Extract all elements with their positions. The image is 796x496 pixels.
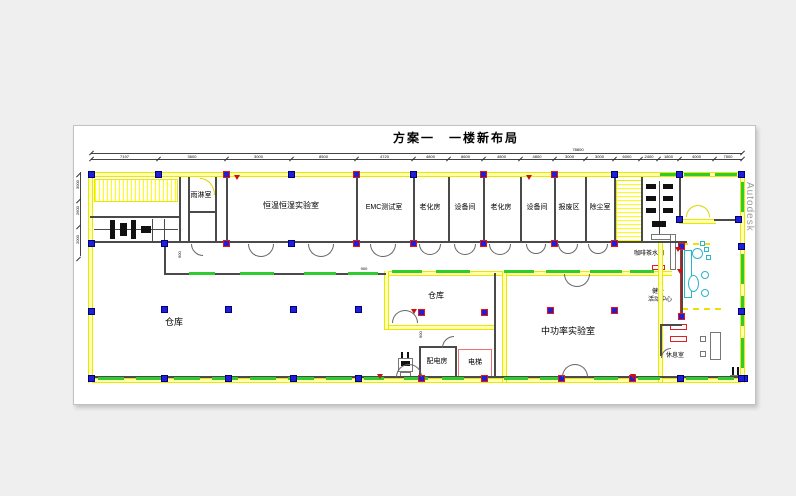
page-title: 方案一 一楼新布局 (393, 132, 519, 145)
lounge-chair (700, 336, 706, 342)
coffee-counter-side (670, 234, 676, 270)
dimension-segment-value: 3000 (75, 180, 80, 189)
dimension-segment-value: 7197 (120, 154, 129, 159)
column-marker (677, 375, 684, 382)
red-triangle-marker (377, 374, 383, 379)
door-leaf (526, 244, 536, 254)
wall-dark (554, 177, 556, 241)
column-marker (288, 171, 295, 178)
green-highlight (638, 377, 660, 380)
door-leaf (562, 364, 575, 377)
green-highlight (741, 182, 744, 212)
door-leaf (191, 244, 203, 256)
room-label-aging-2: 老化房 (491, 204, 512, 212)
green-highlight (594, 377, 618, 380)
green-highlight (304, 272, 336, 275)
column-marker (223, 240, 230, 247)
dimension-micro-1: 900 (177, 251, 182, 258)
column-marker (410, 240, 417, 247)
door-leaf (558, 244, 568, 254)
dimension-segment-value: 7500 (724, 154, 733, 159)
top-dimension-line-segments (91, 159, 742, 160)
round-chair (701, 271, 709, 279)
autodesk-watermark: Autodesk (744, 182, 755, 232)
oval-table (688, 275, 699, 292)
dimension-segment-value: 4800 (426, 154, 435, 159)
column-marker (88, 240, 95, 247)
room-label-medium-power-lab: 中功率实验室 (541, 327, 595, 337)
column-marker (551, 240, 558, 247)
column-marker (481, 375, 488, 382)
column-marker (551, 171, 558, 178)
door-leaf (419, 244, 430, 255)
column-marker (738, 375, 745, 382)
green-highlight (98, 377, 124, 380)
yellow-dashed-opening-bottom (682, 308, 722, 310)
room-label-elevator: 电梯 (468, 359, 482, 367)
dimension-segment-value: 6000 (623, 154, 632, 159)
dimension-tick (740, 157, 745, 162)
dimension-tick (76, 257, 81, 262)
column-marker (223, 171, 230, 178)
wall-dark (614, 177, 616, 241)
washroom-fixtures-left (94, 218, 178, 242)
room-label-temp-humidity-lab: 恒温恒湿实验室 (263, 202, 319, 211)
column-marker (225, 375, 232, 382)
column-marker (353, 240, 360, 247)
dimension-segment-value: 8600 (461, 154, 470, 159)
equipment-tag-red (670, 336, 687, 342)
column-marker (161, 306, 168, 313)
green-highlight (136, 377, 162, 380)
column-marker (547, 307, 554, 314)
wall-dark (90, 216, 179, 218)
column-marker (480, 240, 487, 247)
door-leaf (321, 244, 334, 257)
column-marker (353, 171, 360, 178)
wall-dark (188, 177, 190, 241)
green-highlight (741, 338, 744, 368)
chair (704, 247, 709, 252)
column-marker (290, 375, 297, 382)
column-marker (676, 216, 683, 223)
red-triangle-marker (677, 269, 683, 274)
green-highlight (715, 173, 737, 176)
room-label-emc-test: EMC测试室 (366, 204, 403, 212)
room-label-equipment-1: 设备间 (455, 204, 476, 212)
wall-dark (226, 177, 228, 241)
wall-dark (483, 177, 485, 241)
door-leaf (686, 205, 698, 217)
column-marker (410, 171, 417, 178)
wall-dark (164, 243, 166, 273)
green-highlight (546, 270, 580, 273)
door-leaf (564, 274, 577, 287)
dimension-segment-value: 4720 (380, 154, 389, 159)
wall-dark (90, 241, 687, 243)
column-marker (735, 216, 742, 223)
chair (706, 255, 711, 260)
column-marker (738, 243, 745, 250)
door-leaf (588, 244, 598, 254)
wall-dark (494, 273, 496, 378)
wall-yellow (384, 325, 496, 330)
door-leaf (370, 244, 383, 257)
drawing-canvas: 方案一 一楼新布局 Autodesk 78800 900 900 900 (73, 125, 756, 405)
column-marker (161, 375, 168, 382)
wall-dark (660, 324, 662, 356)
dimension-segment-value: 2000 (75, 235, 80, 244)
green-highlight (326, 377, 352, 380)
dimension-segment-value: 1800 (664, 154, 673, 159)
wall-dark (215, 177, 217, 241)
door-leaf (500, 244, 511, 255)
wall-yellow (502, 271, 507, 382)
column-marker (480, 171, 487, 178)
dimension-segment-value: 4800 (533, 154, 542, 159)
wall-dark (356, 177, 358, 241)
dimension-micro-3: 900 (418, 331, 423, 338)
round-table (692, 248, 703, 259)
column-marker (88, 375, 95, 382)
green-highlight (684, 173, 710, 176)
green-highlight (718, 377, 734, 380)
wall-dark (188, 211, 215, 213)
column-marker (288, 240, 295, 247)
door-leaf (308, 244, 321, 257)
wall-dark (448, 177, 450, 241)
room-label-warehouse-small: 仓库 (428, 292, 444, 301)
door-leaf (430, 244, 441, 255)
dimension-segment-value: 3000 (254, 154, 263, 159)
dimension-segment-value: 3000 (565, 154, 574, 159)
green-highlight (590, 270, 622, 273)
dimension-segment-value: 2600 (75, 206, 80, 215)
green-highlight (686, 377, 708, 380)
column-marker (738, 171, 745, 178)
column-marker (355, 375, 362, 382)
room-label-equipment-2: 设备间 (527, 204, 548, 212)
column-marker (678, 313, 685, 320)
dimension-segment-value: 3000 (595, 154, 604, 159)
door-leaf (536, 244, 546, 254)
column-marker (355, 306, 362, 313)
wall-dark (520, 177, 522, 241)
wall-yellow (679, 219, 716, 224)
door-leaf (248, 244, 261, 257)
dimension-segment-value: 2400 (645, 154, 654, 159)
dimension-tick (740, 151, 745, 156)
door-leaf (577, 274, 590, 287)
column-marker (738, 308, 745, 315)
dimension-segment-value: 4800 (497, 154, 506, 159)
equipment-fixtures-right (642, 181, 678, 235)
green-highlight (630, 270, 654, 273)
wall-yellow (658, 243, 663, 382)
door-leaf (598, 244, 608, 254)
wall-yellow (88, 172, 93, 383)
wall-dark (179, 177, 181, 241)
red-triangle-marker (675, 247, 681, 252)
dimension-overall-value: 78800 (572, 147, 583, 152)
door-leaf (575, 364, 588, 377)
door-leaf (392, 310, 405, 323)
left-dimension-line (80, 172, 81, 256)
red-triangle-marker (234, 175, 240, 180)
column-marker (611, 240, 618, 247)
column-marker (418, 309, 425, 316)
wall-dark (681, 243, 683, 316)
green-highlight (504, 377, 528, 380)
dimension-segment-value: 3600 (188, 154, 197, 159)
chair (700, 241, 705, 246)
green-highlight (392, 270, 422, 273)
red-triangle-marker (526, 175, 532, 180)
column-marker (481, 309, 488, 316)
green-highlight (240, 272, 274, 275)
dimension-segment-value: 4000 (692, 154, 701, 159)
column-marker (225, 306, 232, 313)
door-leaf (489, 244, 500, 255)
dimension-segment-value: 8500 (319, 154, 328, 159)
green-highlight (174, 377, 200, 380)
wall-dark (641, 177, 643, 241)
wall-dark (413, 177, 415, 241)
room-label-dust-removal: 除尘室 (590, 204, 611, 212)
green-highlight (436, 270, 470, 273)
room-label-warehouse-big: 仓库 (165, 318, 183, 328)
column-marker (88, 171, 95, 178)
green-highlight (504, 270, 534, 273)
wall-yellow (384, 271, 389, 329)
door-leaf (698, 205, 710, 217)
room-label-power-distribution: 配电房 (427, 358, 448, 366)
column-marker (290, 306, 297, 313)
green-highlight (189, 272, 215, 275)
red-triangle-marker (630, 374, 636, 379)
column-marker (611, 171, 618, 178)
wall-dark (585, 177, 587, 241)
desktop-background: { "title": "方案一 一楼新布局", "watermark": "Au… (0, 0, 796, 496)
green-highlight (250, 377, 276, 380)
room-label-rain-shower: 雨淋室 (191, 192, 212, 200)
room-label-scrap-area: 报废区 (559, 204, 580, 212)
door-leaf (261, 244, 274, 257)
wall-dark (679, 177, 681, 219)
door-leaf (383, 244, 396, 257)
door-leaf (465, 244, 476, 255)
column-marker (676, 171, 683, 178)
round-chair (701, 289, 709, 297)
lounge-chair (700, 351, 706, 357)
lounge-desk (710, 332, 721, 360)
dimension-micro-2: 900 (361, 266, 368, 271)
green-highlight (741, 254, 744, 284)
column-marker (88, 308, 95, 315)
column-marker (611, 307, 618, 314)
green-highlight (348, 272, 378, 275)
wall-dark (660, 324, 682, 326)
column-marker (155, 171, 162, 178)
staircase-left (94, 179, 178, 202)
staircase-right (616, 180, 642, 242)
room-label-aging-1: 老化房 (420, 204, 441, 212)
yellow-dashed-opening-top (682, 243, 714, 245)
door-leaf (454, 244, 465, 255)
door-leaf (442, 336, 454, 348)
column-marker (161, 240, 168, 247)
green-highlight (442, 377, 464, 380)
door-leaf (568, 244, 578, 254)
